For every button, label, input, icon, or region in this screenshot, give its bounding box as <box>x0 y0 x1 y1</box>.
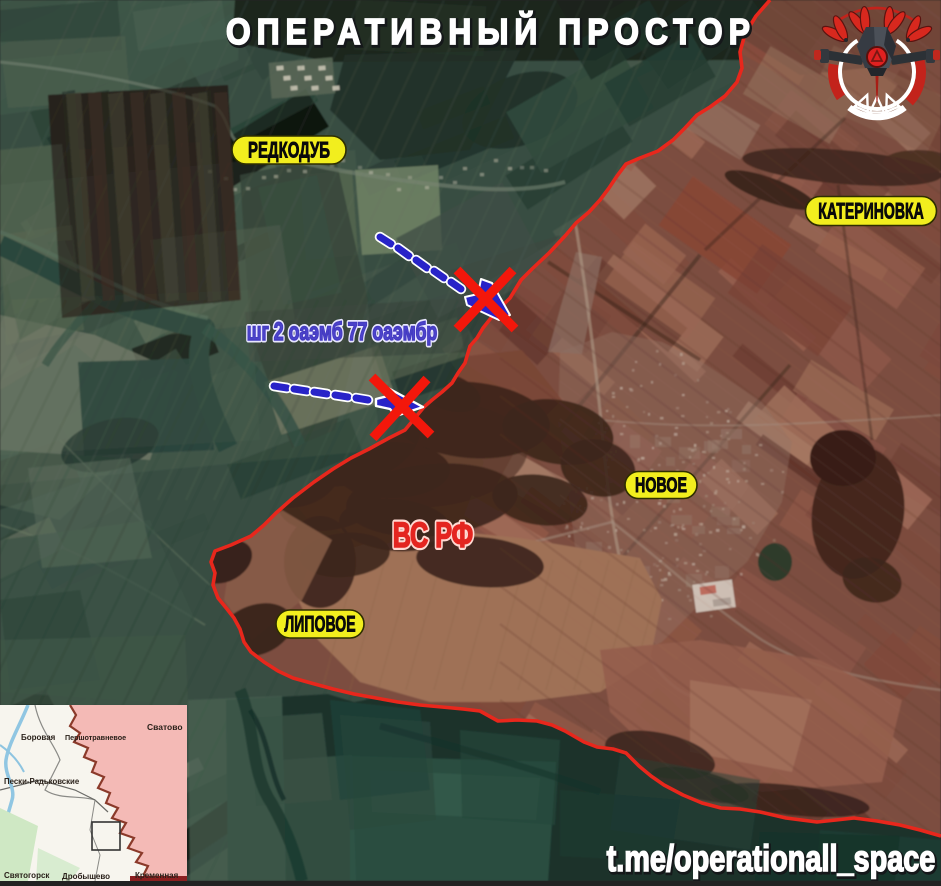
svg-text:РЕДКОДУБ: РЕДКОДУБ <box>248 137 330 162</box>
svg-text:Кременная: Кременная <box>135 871 179 880</box>
svg-text:Сватово: Сватово <box>147 722 183 732</box>
svg-text:ВС РФ: ВС РФ <box>393 516 473 555</box>
svg-text:НОВОЕ: НОВОЕ <box>635 473 687 496</box>
svg-text:Дробышево: Дробышево <box>62 872 110 881</box>
svg-text:Боровая: Боровая <box>21 733 56 742</box>
svg-text:Святогорск: Святогорск <box>4 871 50 880</box>
svg-text:КАТЕРИНОВКА: КАТЕРИНОВКА <box>818 198 924 223</box>
svg-text:ОПЕРАТИВНЫЙ ПРОСТОР: ОПЕРАТИВНЫЙ ПРОСТОР <box>226 11 756 52</box>
svg-text:Пески-Радьковские: Пески-Радьковские <box>4 777 80 786</box>
svg-text:Першотравневое: Першотравневое <box>65 733 126 742</box>
svg-text:шг 2 оаэмб 77 оаэмбр: шг 2 оаэмб 77 оаэмбр <box>247 317 438 346</box>
svg-text:t.me/operationall_space: t.me/operationall_space <box>607 839 936 880</box>
svg-text:ЛИПОВОЕ: ЛИПОВОЕ <box>284 611 355 636</box>
